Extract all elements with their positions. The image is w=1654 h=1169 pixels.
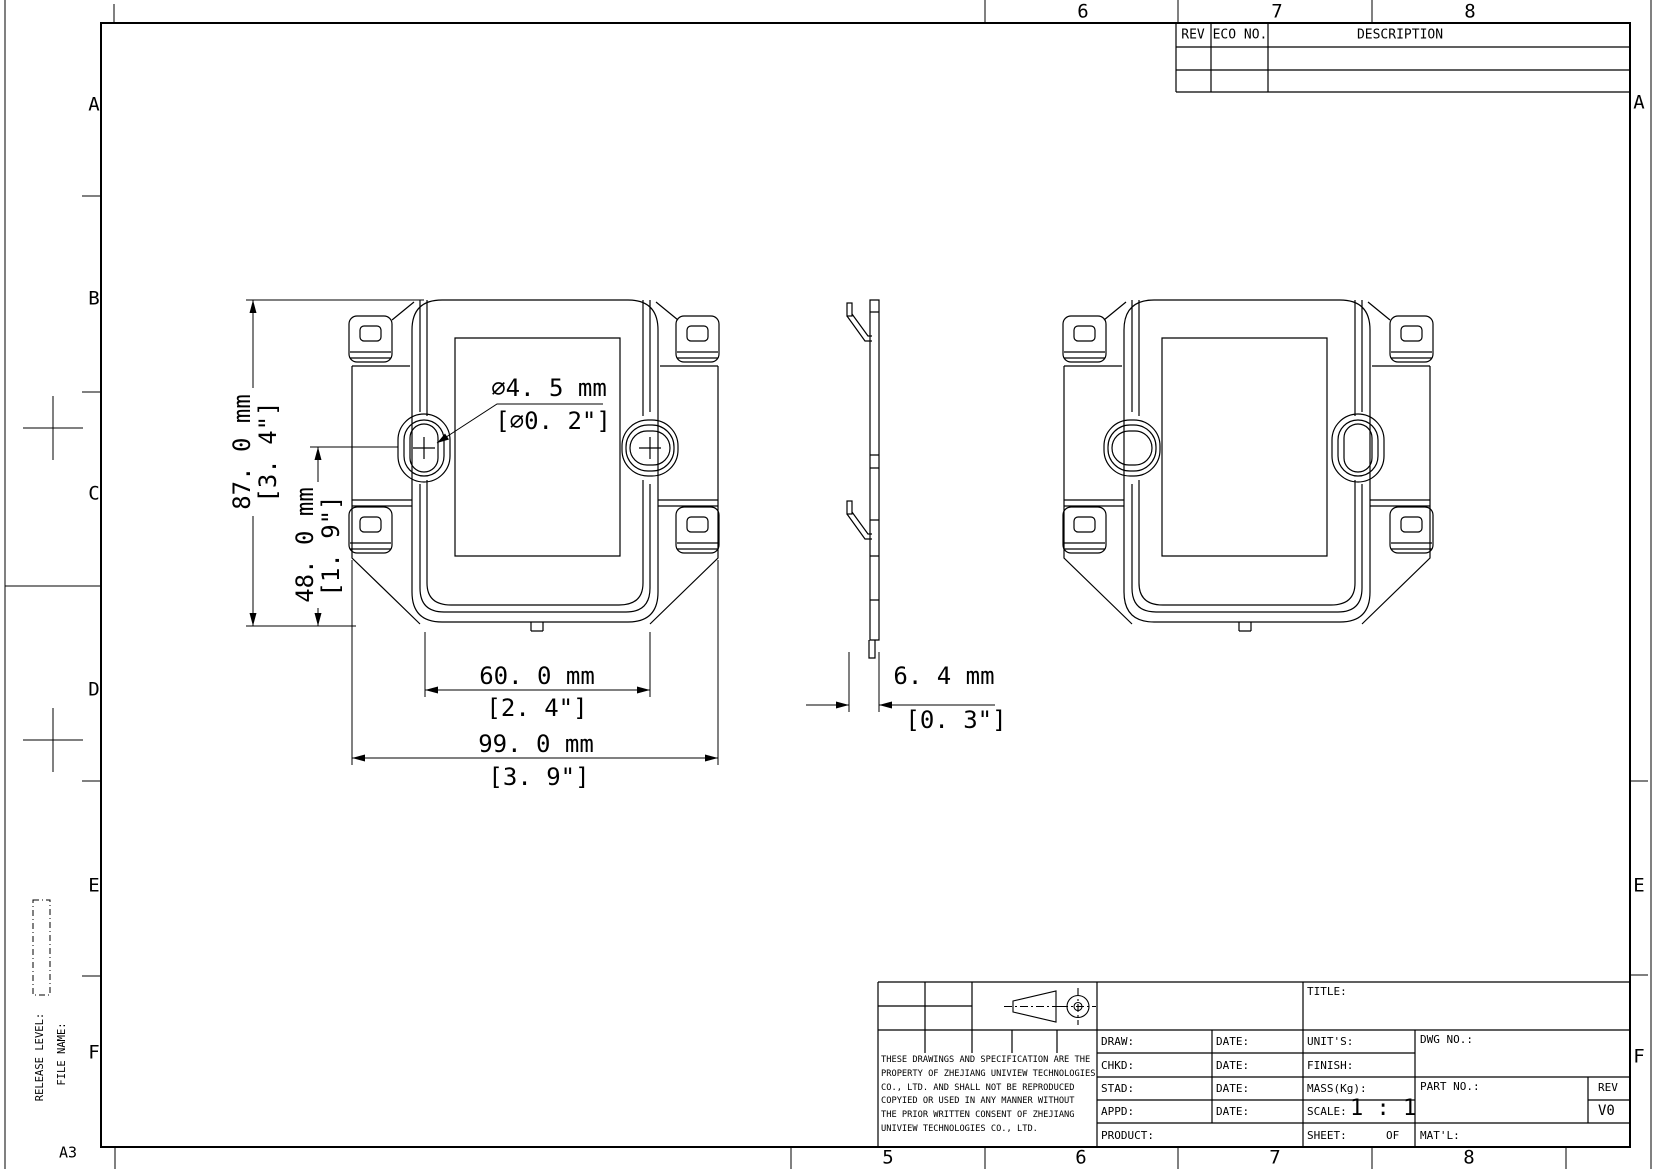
- front-left-slot: [398, 414, 450, 482]
- dwg-no-label: DWG NO.:: [1420, 1034, 1473, 1045]
- grid-col-8-top: 8: [1464, 3, 1475, 22]
- appd-label: APPD:: [1101, 1106, 1134, 1117]
- scale-value: 1 : 1: [1350, 1098, 1416, 1120]
- rear-bottom-tab: [1239, 622, 1251, 631]
- sheet-of-label: OF: [1386, 1130, 1399, 1141]
- rear-view: [1063, 300, 1433, 631]
- notice-line: CO., LTD. AND SHALL NOT BE REPRODUCED: [881, 1084, 1075, 1093]
- drawing-frame: [5, 0, 1651, 1169]
- file-name-label: FILE NAME:: [57, 1022, 68, 1085]
- grid-row-f-left: F: [88, 1044, 99, 1063]
- notice-line: PROPERTY OF ZHEJIANG UNIVIEW TECHNOLOGIE…: [881, 1070, 1095, 1079]
- dim-slot-spacing-in: [2. 4"]: [486, 696, 587, 720]
- grid-row-e-left: E: [88, 877, 99, 896]
- dim-thickness-mm: 6. 4 mm: [893, 664, 994, 688]
- rev-value: V0: [1598, 1104, 1615, 1118]
- finish-label: FINISH:: [1307, 1060, 1353, 1071]
- side-view: [847, 300, 879, 658]
- release-level-label: RELEASE LEVEL:: [35, 1013, 46, 1102]
- front-center-opening: [455, 338, 620, 556]
- drawing-canvas: [0, 0, 1654, 1169]
- front-plate-outline: [412, 300, 658, 622]
- dim-slot-spacing-mm: 60. 0 mm: [479, 664, 595, 688]
- rear-wings: [1064, 302, 1430, 624]
- side-hook-bottom: [847, 501, 872, 539]
- side-hook-top: [847, 303, 872, 341]
- matl-label: MAT'L:: [1420, 1130, 1460, 1141]
- draw-date-label: DATE:: [1216, 1036, 1249, 1047]
- notice-line: COPYIED OR USED IN ANY MANNER WITHOUT: [881, 1097, 1075, 1106]
- rev-table-rev-header: REV: [1181, 29, 1204, 42]
- dim-overall-width-mm: 99. 0 mm: [478, 732, 594, 756]
- rev-table-description-header: DESCRIPTION: [1357, 29, 1443, 42]
- dim-thickness-in: [0. 3"]: [905, 708, 1006, 732]
- grid-col-6-bottom: 6: [1075, 1149, 1086, 1168]
- title-label: TITLE:: [1307, 986, 1347, 997]
- dim-overall-width-in: [3. 9"]: [488, 765, 589, 789]
- rear-left-slot: [1104, 420, 1160, 476]
- grid-row-d-left: D: [88, 681, 99, 700]
- grid-col-7-bottom: 7: [1269, 1149, 1280, 1168]
- rear-plate-outline: [1124, 300, 1370, 622]
- scale-label: SCALE:: [1307, 1106, 1347, 1117]
- dim-hole-offset-in: [1. 9"]: [319, 495, 343, 596]
- dim-overall-height-in: [3. 4"]: [256, 401, 280, 502]
- grid-col-5-bottom: 5: [882, 1149, 893, 1168]
- appd-date-label: DATE:: [1216, 1106, 1249, 1117]
- grid-row-a-left: A: [88, 96, 99, 115]
- product-label: PRODUCT:: [1101, 1130, 1154, 1141]
- sheet-label: SHEET:: [1307, 1130, 1347, 1141]
- rear-center-opening: [1162, 338, 1327, 556]
- stad-date-label: DATE:: [1216, 1083, 1249, 1094]
- chkd-date-label: DATE:: [1216, 1060, 1249, 1071]
- rev-label: REV: [1598, 1082, 1618, 1093]
- grid-row-b-left: B: [88, 290, 99, 309]
- mass-label: MASS(Kg):: [1307, 1083, 1367, 1094]
- rear-right-slot: [1332, 414, 1384, 482]
- centering-marks: [23, 396, 83, 772]
- drawing-sheet: 6 7 8 5 6 7 8 A B C D E F A E F A3 RELEA…: [0, 0, 1654, 1169]
- rev-table-eco-header: ECO NO.: [1213, 29, 1268, 42]
- notice-line: UNIVIEW TECHNOLOGIES CO., LTD.: [881, 1125, 1038, 1134]
- dim-hole-offset-mm: 48. 0 mm: [293, 487, 317, 603]
- stad-label: STAD:: [1101, 1083, 1134, 1094]
- sheet-format-label: A3: [59, 1146, 77, 1161]
- grid-col-6-top: 6: [1077, 3, 1088, 22]
- part-no-label: PART NO.:: [1420, 1081, 1480, 1092]
- grid-col-8-bottom: 8: [1463, 1149, 1474, 1168]
- front-bottom-tab: [531, 622, 543, 631]
- draw-label: DRAW:: [1101, 1036, 1134, 1047]
- dim-hole-diameter-mm: ∅4. 5 mm: [491, 376, 607, 400]
- dim-hole-diameter-in: [∅0. 2"]: [495, 409, 611, 433]
- projection-symbol-icon: [1004, 988, 1096, 1025]
- units-label: UNIT'S:: [1307, 1036, 1353, 1047]
- grid-col-7-top: 7: [1271, 3, 1282, 22]
- dimension-arrowheads: [250, 300, 893, 762]
- dim-overall-height-mm: 87. 0 mm: [230, 394, 254, 510]
- front-right-slot: [622, 420, 678, 476]
- grid-row-f-right: F: [1633, 1048, 1644, 1067]
- grid-row-e-right: E: [1633, 877, 1644, 896]
- notice-line: THESE DRAWINGS AND SPECIFICATION ARE THE: [881, 1056, 1090, 1065]
- front-view: [349, 300, 719, 631]
- grid-row-a-right: A: [1633, 94, 1644, 113]
- notice-line: THE PRIOR WRITTEN CONSENT OF ZHEJIANG: [881, 1111, 1075, 1120]
- front-wings: [352, 302, 718, 624]
- grid-row-c-left: C: [88, 485, 99, 504]
- chkd-label: CHKD:: [1101, 1060, 1134, 1071]
- release-level-box: [33, 900, 50, 995]
